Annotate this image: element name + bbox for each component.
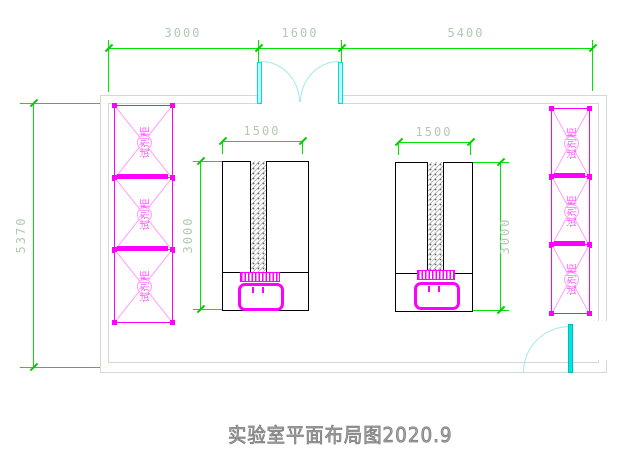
drawing-title: 实验室平面布局图2020.9 [228,419,452,448]
dim-text-bench-left-width: 1500 [229,124,295,138]
cabinet-separator [554,241,585,246]
dim-ext-line [472,310,509,311]
faucet-icon [428,286,430,292]
reagent-cabinet: 试剂柜 [551,244,590,314]
door-leaf-bottom-right [568,324,573,373]
dim-line-top [108,48,592,49]
cabinet-label: 试剂柜 [136,126,151,159]
door-leaf-left [257,62,262,104]
cabinet-label: 试剂柜 [136,198,151,231]
reagent-cabinet: 试剂柜 [551,108,590,178]
reagent-cabinet: 试剂柜 [114,249,173,323]
dim-tick [589,44,597,52]
bench-right-service-column [427,162,444,273]
dim-line-bench-left-height [200,161,201,309]
cabinet-label: 试剂柜 [136,270,151,303]
door-swing-arc-icon [300,61,339,102]
sink-drainer-right [417,270,455,280]
dim-ext-line [472,162,509,163]
dim-line-bench-left-width [222,141,302,142]
dim-line-left-overall [33,103,34,367]
faucet-icon [252,287,254,293]
reagent-cabinet: 试剂柜 [551,176,590,246]
reagent-cabinet: 试剂柜 [114,105,173,179]
bench-left-service-column [250,161,267,272]
dim-text-bench-right-height: 3000 [498,203,512,269]
cabinet-label: 试剂柜 [563,127,578,160]
dim-line-bench-right-width [398,142,470,143]
cabinet-separator [117,246,168,251]
dim-ext-line [341,40,342,63]
dim-text-left-overall: 5370 [14,202,28,268]
cabinet-label: 试剂柜 [563,263,578,296]
dim-text-top-left: 3000 [150,26,216,40]
door-swing-arc-icon [261,61,300,102]
dim-text-top-middle: 1600 [267,26,333,40]
floor-plan-canvas: 3000 1600 5400 5370 1500 3000 1500 3000 [0,0,619,469]
dim-text-top-right: 5400 [433,26,499,40]
sink-basin-left [238,283,284,311]
sink-drainer-left [240,272,280,282]
door-leaf-right [338,62,343,104]
faucet-icon [438,286,440,292]
faucet-icon [262,287,264,293]
cabinet-separator [117,174,168,179]
reagent-cabinet: 试剂柜 [114,177,173,251]
cabinet-label: 试剂柜 [563,195,578,228]
right-door-opening [595,321,609,360]
dim-ext-line [258,40,259,63]
dim-text-bench-right-width: 1500 [401,125,467,139]
cabinet-separator [554,173,585,178]
sink-basin-right [414,282,460,310]
dim-text-bench-left-height: 3000 [181,202,195,268]
